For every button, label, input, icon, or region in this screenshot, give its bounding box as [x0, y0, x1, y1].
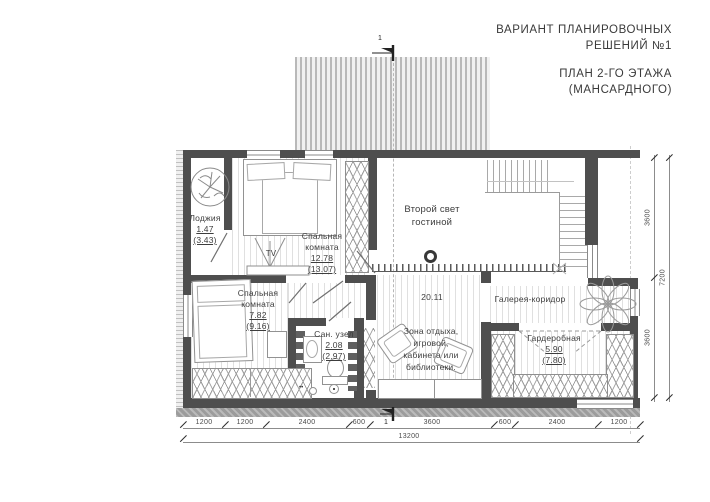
stair-lower-flight — [559, 196, 588, 269]
room-name: Гардеробная — [527, 333, 581, 344]
label-bedroom-top: Спальная комната 12.78 (13.07) — [302, 231, 342, 275]
dim-value: 2400 — [299, 419, 316, 426]
dim-tick — [637, 435, 644, 442]
wall-stub-right-horizontal — [588, 278, 638, 286]
label-tv: TV — [266, 248, 277, 259]
stair-rail — [485, 192, 559, 193]
label-second-light: Второй свет гостиной — [404, 203, 459, 229]
cabinet — [434, 379, 482, 399]
pillow — [293, 162, 332, 181]
dim-value: 3600 — [645, 207, 652, 229]
room-area-gross: (3.43) — [189, 235, 220, 246]
room-name: гостиной — [404, 216, 459, 229]
room-area: 7.82 — [238, 310, 278, 321]
room-name: Лоджия — [189, 213, 220, 224]
fixture-dots: •• — [299, 385, 307, 391]
pillow — [247, 162, 286, 181]
wall-loggia-partition — [224, 158, 232, 230]
bed-blanket — [262, 172, 318, 234]
dim-value: 3600 — [424, 419, 441, 426]
section-cut-line — [393, 58, 394, 418]
window-wardrobe-bottom — [577, 399, 633, 409]
room-name: Спальная — [302, 231, 342, 242]
drain-dot — [333, 388, 335, 390]
zone-desc-line: Зона отдыха, — [403, 325, 458, 337]
room-area-gross: (7.80) — [527, 355, 581, 366]
dim-total: 7200 — [660, 267, 667, 289]
room-name: Спальная — [238, 288, 278, 299]
wall-wardrobe-top-right — [601, 323, 638, 331]
label-zone-desc: Зона отдыха, игровой, кабинета или библи… — [403, 325, 458, 373]
drawing-sheet: ВАРИАНТ ПЛАНИРОВОЧНЫХ РЕШЕНИЙ №1 ПЛАН 2-… — [0, 0, 710, 502]
plan-title-line2: (МАНСАРДНОГО) — [496, 82, 672, 98]
dim-value: 1200 — [196, 419, 213, 426]
nightstand — [267, 331, 287, 358]
closet-divider — [250, 368, 251, 397]
dim-value: 2400 — [549, 419, 566, 426]
wardrobe-rack-left — [491, 334, 515, 398]
wall-shaft-stub-top — [366, 275, 376, 320]
label-corridor: Галерея-коридор — [495, 294, 566, 305]
title-block: ВАРИАНТ ПЛАНИРОВОЧНЫХ РЕШЕНИЙ №1 ПЛАН 2-… — [496, 22, 672, 98]
zone-desc-line: игровой, — [403, 337, 458, 349]
wall-pier-void-edge — [481, 271, 491, 283]
dim-value: 600 — [353, 419, 366, 426]
stair-rail-inner — [487, 181, 574, 182]
dim-line-bottom — [183, 428, 640, 429]
variant-title-line1: ВАРИАНТ ПЛАНИРОВОЧНЫХ — [496, 22, 672, 38]
floor-drain — [329, 384, 339, 394]
dim-value: 1200 — [611, 419, 628, 426]
shaft-hatch — [364, 328, 375, 388]
window-corridor — [630, 289, 640, 316]
label-bathroom: Сан. узел 2.08 (2.97) — [314, 329, 354, 362]
room-name: комната — [238, 299, 278, 310]
room-area-gross: (13.07) — [302, 264, 342, 275]
label-zone-area: 20.11 — [421, 292, 443, 303]
roof-eave-bottom — [176, 408, 640, 417]
room-area-gross: (2.97) — [314, 351, 354, 362]
plan-title-line1: ПЛАН 2-ГО ЭТАЖА — [496, 66, 672, 82]
closet-bedroom-bottom — [192, 368, 312, 399]
wall-bathroom-top — [288, 318, 326, 326]
drain — [309, 387, 317, 395]
floor-hall — [288, 283, 366, 318]
wardrobe-rack-right — [606, 334, 634, 398]
dim-total: 13200 — [399, 433, 420, 440]
variant-title-line2: РЕШЕНИЙ №1 — [496, 38, 672, 54]
wall-stub-right-top — [585, 158, 598, 245]
label-wardrobe: Гардеробная 5.90 (7.80) — [527, 333, 581, 366]
room-area: 2.08 — [314, 340, 354, 351]
stair-upper-flight — [487, 160, 553, 193]
window-stair-side — [587, 245, 598, 278]
wall-left — [183, 150, 191, 408]
section-mark-label-bottom: 1 — [384, 419, 388, 426]
column — [424, 250, 437, 263]
dim-value: 1200 — [237, 419, 254, 426]
wall-mid-right — [345, 275, 368, 283]
dim-tick — [637, 421, 644, 428]
dim-value: 600 — [499, 419, 512, 426]
room-area: 5.90 — [527, 344, 581, 355]
room-area: 1.47 — [189, 224, 220, 235]
void-edge-comb — [372, 264, 566, 272]
roof-hatch-left — [176, 150, 183, 408]
bed-double — [243, 159, 337, 236]
dim-value: 3600 — [645, 327, 652, 349]
wall-bedroom-top-right — [368, 158, 377, 250]
wall-zone-corridor — [481, 322, 491, 398]
room-name: Второй свет — [404, 203, 459, 216]
wall-shaft-stub-bottom — [366, 390, 376, 398]
dim-line-bottom-total — [183, 442, 640, 443]
stair-edge — [559, 192, 560, 270]
room-name: комната — [302, 242, 342, 253]
zone-desc-line: библиотеки. — [403, 361, 458, 373]
zone-desc-line: кабинета или — [403, 349, 458, 361]
wardrobe-bedroom-top — [345, 161, 369, 273]
cabinet — [378, 379, 436, 399]
room-name: Сан. узел — [314, 329, 354, 340]
room-area: 12.78 — [302, 253, 342, 264]
label-bedroom-bottom: Спальная комната 7.82 (9.16) — [238, 288, 278, 332]
dim-line-right-total — [669, 155, 670, 402]
section-mark-label-top: 1 — [378, 35, 382, 42]
wardrobe-rack-bottom — [513, 374, 608, 398]
wall-wardrobe-top-left — [491, 323, 519, 331]
room-area-gross: (9.16) — [238, 321, 278, 332]
wall-bottom — [183, 398, 640, 408]
label-loggia: Лоджия 1.47 (3.43) — [189, 213, 220, 246]
